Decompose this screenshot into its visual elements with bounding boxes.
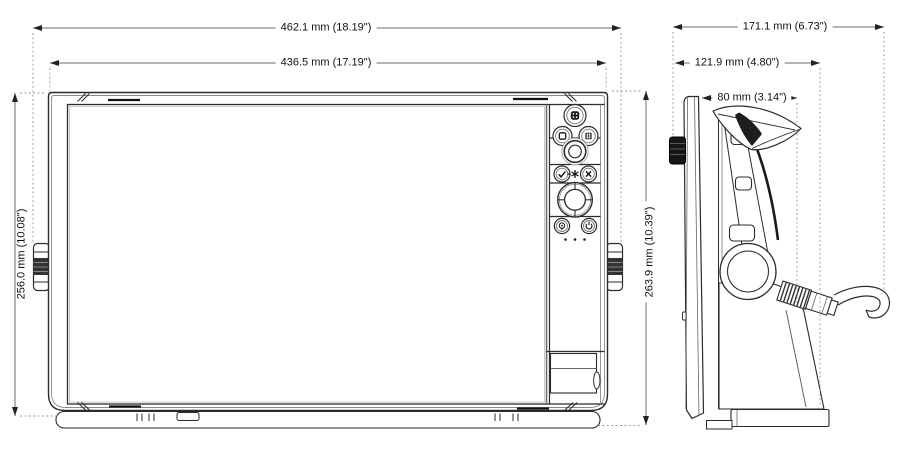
dim-label-overall-depth: 171.1 mm (6.73") [738,21,833,34]
front-view [34,93,623,429]
exit-button [581,166,597,182]
card-door-notch [594,372,600,389]
side-bracket-knob [670,137,686,164]
power-button [581,218,596,233]
bottom-bracket-strip [56,412,600,429]
dim-label-body-depth: 80 mm (3.14") [712,92,791,105]
menu-icon [585,133,591,139]
dim-label-overall-width: 462.1 mm (18.19") [276,22,377,35]
bracket-round-knob [720,244,776,300]
left-bracket-knob [34,244,50,291]
dim-label-overall-height: 263.9 mm (10.39") [644,202,657,303]
device-drawing [0,0,900,471]
dimension-drawing: 462.1 mm (18.19") 436.5 mm (17.19") 256.… [0,0,900,471]
dim-label-bezel-height: 256.0 mm (10.08") [16,204,29,305]
right-bracket-knob [607,244,623,291]
dim-label-bracket-depth: 121.9 mm (4.80") [690,57,785,70]
bracket-fin [713,106,801,150]
bracket-base [707,410,830,430]
mob-button [554,218,569,233]
pages-icon [571,111,579,119]
dim-label-bezel-width: 436.5 mm (17.19") [276,57,377,70]
panel-clip [683,312,687,320]
screen [68,105,547,405]
rotary-knob [562,138,588,164]
side-view [670,97,890,430]
pages-button [564,105,586,127]
cursor-pad [558,183,593,218]
power-cable [834,286,889,318]
